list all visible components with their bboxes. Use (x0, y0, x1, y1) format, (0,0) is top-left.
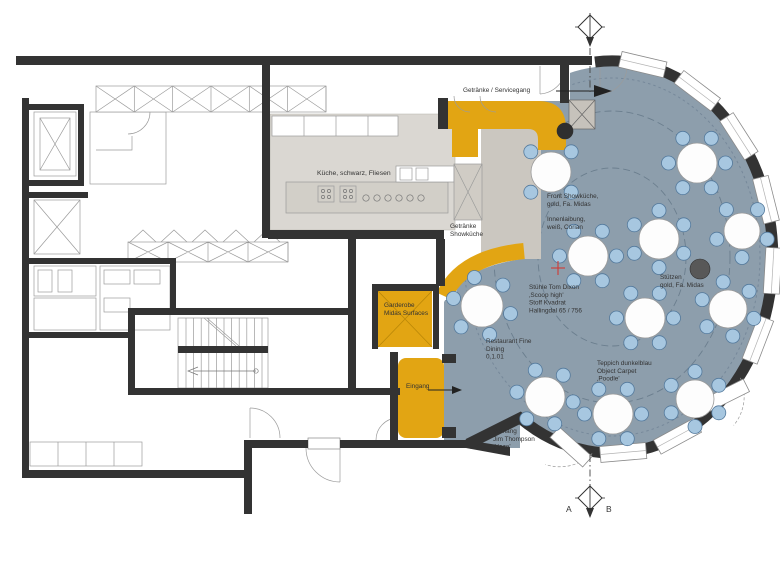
chair (726, 329, 740, 343)
chair (652, 204, 666, 218)
chair (712, 378, 726, 392)
chair (735, 251, 749, 265)
label-servicegang: Getränke / Servicegang (463, 87, 531, 94)
floor-plan: Getränke / ServicegangKüche, schwarz, Fl… (0, 0, 780, 562)
chair (556, 368, 570, 382)
chair (627, 246, 641, 260)
chair (620, 432, 634, 446)
chair (566, 395, 580, 409)
chair (742, 284, 756, 298)
table-top (709, 290, 747, 328)
label-garderobe: Midas Surfaces (384, 310, 428, 317)
gold-counter-leg (452, 129, 478, 157)
table-top (676, 380, 714, 418)
chair (496, 278, 510, 292)
chair (592, 382, 606, 396)
chair (595, 274, 609, 288)
table-top (461, 285, 503, 327)
chair (510, 385, 524, 399)
label-stuetzen: gold, Fa. Midas (660, 282, 704, 289)
chair (688, 420, 702, 434)
chair (548, 417, 562, 431)
chair (610, 249, 624, 263)
label-vorhang: Jim Thompson (493, 436, 535, 443)
chair (751, 203, 765, 217)
label-eingang: Eingang (406, 383, 430, 390)
facade-window (763, 247, 780, 294)
office-room (90, 112, 166, 184)
chair (454, 320, 468, 334)
chair (704, 131, 718, 145)
chair (676, 131, 690, 145)
label-stuehle: Hallingdal 65 / 756 (529, 307, 582, 314)
wall-window (308, 438, 340, 449)
chair (520, 412, 534, 426)
label-teppich: Object Carpet (597, 368, 637, 375)
column (690, 259, 710, 279)
table-top (724, 213, 760, 249)
chair (676, 181, 690, 195)
dining-table (524, 145, 578, 199)
label-teppich: Teppich dunkelblau (597, 360, 652, 367)
chair (662, 156, 676, 170)
chair (524, 185, 538, 199)
floorplan-sheet: FINE DINING*** RESTAURANT / GRUNDRISS / … (0, 0, 780, 562)
kitchen-island (286, 182, 448, 213)
label-stuehle: Stühle Tom Dixon (529, 284, 579, 291)
table-top (677, 143, 717, 183)
chair (704, 181, 718, 195)
label-garderobe: Garderobe (384, 302, 415, 309)
chair (716, 275, 730, 289)
label-restaurant: Dining (486, 346, 505, 353)
chair (747, 311, 761, 325)
section-marker (575, 13, 605, 47)
section-letter-a: A (566, 504, 572, 514)
chair (695, 293, 709, 307)
section-marker: AB (566, 484, 612, 518)
chair (700, 320, 714, 334)
table-top (568, 236, 608, 276)
chair (524, 145, 538, 159)
section-arrow (586, 37, 594, 47)
staircase (178, 318, 268, 388)
chair (592, 432, 606, 446)
chair (610, 311, 624, 325)
chair (710, 232, 724, 246)
label-restaurant: Restaurant Fine (486, 338, 532, 345)
chair (564, 145, 578, 159)
label-getraenke-showkueche: Showküche (450, 231, 483, 238)
chair (528, 363, 542, 377)
chair (652, 336, 666, 350)
gold-entrance (398, 358, 444, 438)
chair (652, 261, 666, 275)
chair (635, 407, 649, 421)
chair (677, 246, 691, 260)
label-front-showkueche: gold, Fa. Midas (547, 201, 591, 208)
chair (553, 249, 567, 263)
section-letter-b: B (606, 504, 612, 514)
chair (504, 307, 518, 321)
label-stuetzen: Stützen (660, 274, 682, 281)
chair (712, 406, 726, 420)
table-top (639, 219, 679, 259)
chair (719, 156, 733, 170)
chair (467, 271, 481, 285)
label-kueche: Küche, schwarz, Fliesen (317, 170, 391, 177)
facade-window (600, 443, 647, 463)
chair (627, 218, 641, 232)
label-getraenke-showkueche: Getränke (450, 223, 477, 230)
label-innenlaibung: Innenlaibung, (547, 216, 586, 223)
label-innenlaibung: weiß, Corian (546, 224, 583, 231)
label-restaurant: 0.1.01 (486, 354, 504, 361)
label-teppich: ‚Poodle' (597, 376, 620, 383)
chair (664, 378, 678, 392)
chair (624, 336, 638, 350)
label-vorhang: Vorhang (493, 428, 517, 435)
chair (595, 224, 609, 238)
kitchen-counter (272, 116, 398, 136)
table-top (531, 152, 571, 192)
chair (578, 407, 592, 421)
chair (677, 218, 691, 232)
table-top (593, 394, 633, 434)
chair (447, 291, 461, 305)
chair (620, 382, 634, 396)
chair (624, 286, 638, 300)
label-front-showkueche: Front Showküche, (547, 193, 599, 200)
column (557, 123, 573, 139)
label-stuehle: Stoff Kvadrat (529, 300, 566, 307)
chair (664, 406, 678, 420)
chair (719, 203, 733, 217)
label-vorhang: ‚Haze' (493, 444, 511, 451)
chair (667, 311, 681, 325)
chair (760, 232, 774, 246)
section-arrow (586, 508, 594, 518)
table-top (525, 377, 565, 417)
table-top (625, 298, 665, 338)
chair (688, 365, 702, 379)
label-stuehle: ‚Scoop high' (529, 292, 564, 299)
